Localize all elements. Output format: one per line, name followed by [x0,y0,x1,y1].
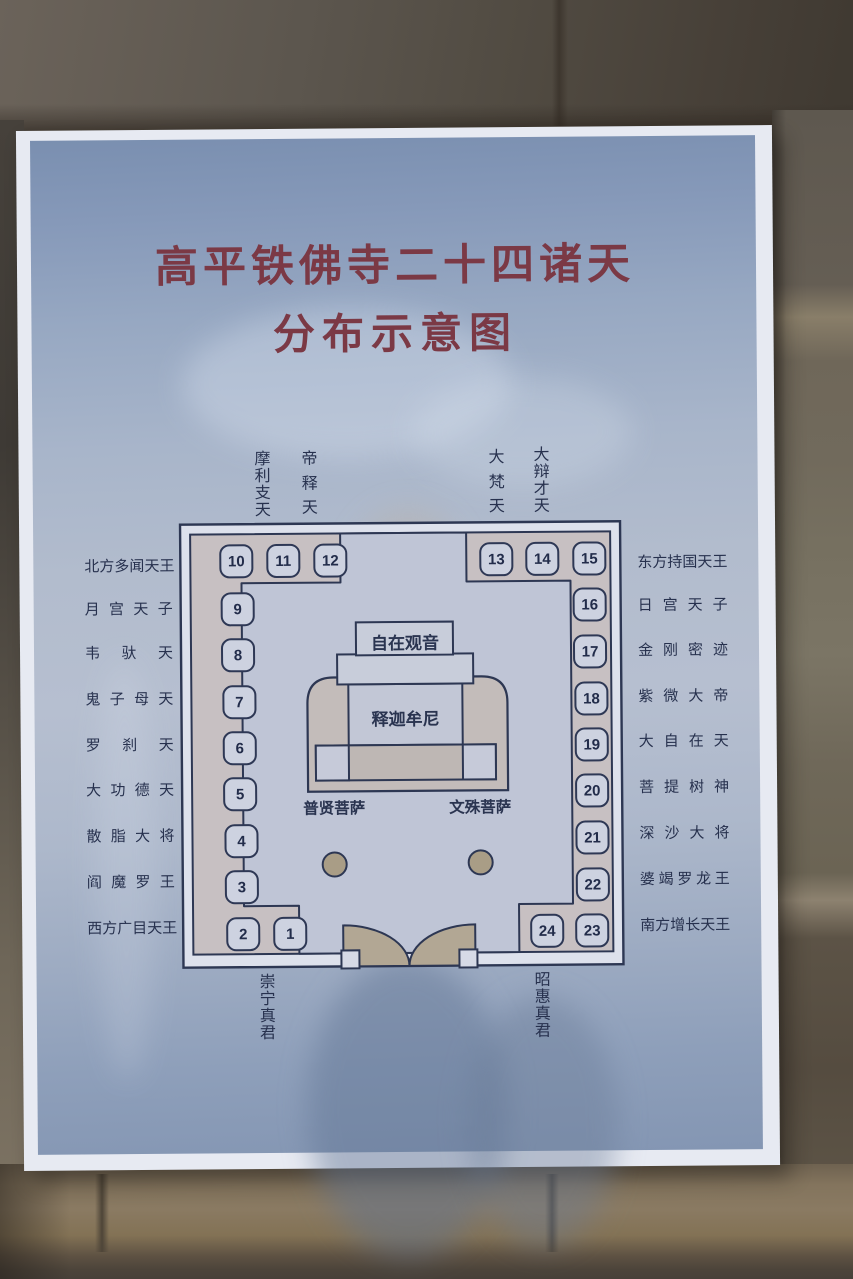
label-left-9: 西方广目天王 [87,919,175,940]
label-char: 国 [682,553,697,573]
label-char: 王 [715,869,730,889]
label-char: 摩 [254,451,270,468]
label-top-2: 帝释天 [299,451,320,517]
label-char: 天 [489,498,505,515]
label-char: 多 [114,557,129,577]
label-char: 天 [255,502,271,519]
seat-12: 12 [313,543,347,577]
label-char: 迹 [713,640,728,660]
photo-scene: 高平铁佛寺二十四诸天 分布示意图 [0,0,853,1279]
label-char: 方 [655,916,670,936]
label-char: 西 [87,919,102,939]
label-left-8: 阎魔罗王 [87,873,175,894]
label-char: 帝 [301,451,317,468]
altar-platform [337,653,473,684]
label-char: 宫 [663,596,678,616]
label-char: 方 [99,557,114,577]
label-top-4: 大辩才天 [531,447,552,515]
seat-16: 16 [573,587,607,621]
label-char: 提 [664,778,679,798]
label-char: 王 [712,552,727,572]
label-char: 闻 [129,557,144,577]
label-char: 刚 [663,641,678,661]
label-right-1: 东方持国天王 [637,552,727,573]
label-char: 君 [260,1025,276,1042]
label-char: 天 [144,557,159,577]
label-char: 沙 [664,824,679,844]
seat-4: 4 [224,824,258,858]
label-char: 深 [639,824,654,844]
altar-corner-left [316,745,349,780]
seat-8: 8 [221,638,255,672]
label-right-2: 日宫天子 [638,595,728,616]
label-char: 崇 [260,974,276,991]
seat-21: 21 [575,820,609,854]
label-char: 辩 [534,464,550,481]
label-left-1: 北方多闻天王 [84,557,172,578]
label-char: 紫 [638,687,653,707]
label-char: 天 [158,690,173,710]
label-char: 王 [159,557,174,577]
label-puxian: 普贤菩萨 [303,796,365,818]
label-right-3: 金刚密迹 [638,640,728,661]
label-char: 菩 [639,778,654,798]
label-char: 鬼 [85,690,100,710]
label-right-6: 菩提树神 [639,777,729,798]
label-bottom-2: 昭惠真君 [533,972,554,1036]
label-char: 魔 [111,873,126,893]
label-char: 梵 [489,474,505,491]
label-left-4: 鬼子母天 [85,690,173,711]
label-char: 帝 [713,686,728,706]
label-char: 月 [85,600,100,620]
label-char: 子 [713,595,728,615]
seat-11: 11 [266,544,300,578]
poster-title-line1: 高平铁佛寺二十四诸天 [17,228,773,296]
stone-joint [95,1174,109,1252]
label-char: 广 [117,919,132,939]
label-char: 南 [640,916,655,936]
label-char: 罗 [135,873,150,893]
label-char: 宁 [260,991,276,1008]
label-char: 大 [688,687,703,707]
label-char: 释 [302,475,318,492]
label-char: 竭 [658,870,673,890]
label-char: 脂 [111,827,126,847]
label-sakyamuni: 释迦牟尼 [371,705,439,731]
label-char: 天 [697,553,712,573]
label-left-5: 罗刹天 [86,736,174,757]
seat-15: 15 [572,541,606,575]
label-char: 树 [689,778,704,798]
label-char: 微 [663,687,678,707]
poster-title-line2: 分布示意图 [17,297,773,364]
label-char: 将 [714,823,729,843]
stone-joint [552,0,568,126]
seat-19: 19 [575,727,609,761]
label-char: 大 [533,447,549,464]
door-hinge-left [341,950,359,968]
pillar-left [323,852,347,876]
label-char: 东 [637,553,652,573]
label-char: 金 [638,641,653,661]
label-char: 刹 [122,736,137,756]
label-char: 目 [132,919,147,939]
label-left-7: 散脂大将 [86,827,174,848]
pillar-right [469,850,493,874]
label-char: 天 [700,916,715,936]
label-char: 大 [86,781,101,801]
label-char: 阎 [87,873,102,893]
label-char: 天 [158,644,173,664]
label-char: 王 [160,873,175,893]
label-char: 王 [715,915,730,935]
label-char: 子 [110,690,125,710]
label-char: 真 [535,1006,551,1023]
stone-joint [545,1174,559,1252]
label-char: 天 [302,500,318,517]
label-left-3: 韦驮天 [85,644,173,665]
label-char: 功 [110,781,125,801]
label-char: 支 [255,485,271,502]
label-char: 天 [159,781,174,801]
label-char: 驮 [121,644,136,664]
label-char: 天 [688,596,703,616]
label-char: 韦 [85,644,100,664]
label-guanyin: 自在观音 [371,629,439,655]
label-char: 在 [689,732,704,752]
label-char: 母 [134,690,149,710]
label-char: 德 [135,781,150,801]
label-char: 长 [685,916,700,936]
label-left-6: 大功德天 [86,781,174,802]
stone-wall-right [772,110,853,1200]
label-char: 罗 [86,736,101,756]
stone-wall-bottom [0,1164,853,1279]
label-top-3: 大梵天 [486,449,507,515]
label-right-4: 紫微大帝 [638,686,728,707]
label-top-1: 摩利支天 [252,451,273,517]
label-char: 神 [714,777,729,797]
seat-9: 9 [221,592,255,626]
label-char: 北 [84,557,99,577]
seat-7: 7 [222,685,256,719]
seat-14: 14 [525,542,559,576]
stone-wall-top [0,0,853,138]
label-char: 将 [159,827,174,847]
label-char: 真 [260,1008,276,1025]
door-hinge-right [459,949,477,967]
seat-17: 17 [573,634,607,668]
label-right-7: 深沙大将 [639,823,729,844]
label-wenshu: 文殊菩萨 [449,795,511,817]
label-char: 天 [714,731,729,751]
label-char: 昭 [535,972,551,989]
label-char: 天 [534,498,550,515]
label-char: 散 [86,827,101,847]
label-char: 持 [667,553,682,573]
seat-23: 23 [575,913,609,947]
seat-13: 13 [479,542,513,576]
label-char: 增 [670,916,685,936]
label-char: 婆 [640,870,655,890]
seat-1: 1 [273,917,307,951]
label-char: 日 [638,596,653,616]
seat-6: 6 [223,731,257,765]
seat-5: 5 [223,777,257,811]
label-char: 天 [133,600,148,620]
label-char: 大 [639,732,654,752]
label-char: 大 [689,824,704,844]
label-left-2: 月宫天子 [85,600,173,621]
seat-2: 2 [226,917,260,951]
label-char: 才 [534,481,550,498]
label-right-8: 婆竭罗龙王 [640,869,730,890]
label-char: 罗 [677,870,692,890]
label-char: 天 [147,919,162,939]
label-char: 密 [688,641,703,661]
seat-18: 18 [574,681,608,715]
label-char: 子 [158,600,173,620]
label-char: 利 [255,468,271,485]
poster: 高平铁佛寺二十四诸天 分布示意图 [16,125,780,1171]
seat-3: 3 [225,870,259,904]
label-bottom-1: 崇宁真君 [258,974,279,1038]
label-right-9: 南方增长天王 [640,915,730,936]
label-char: 龙 [696,870,711,890]
label-char: 方 [652,553,667,573]
seat-24: 24 [530,914,564,948]
label-char: 宫 [109,600,124,620]
label-char: 君 [535,1023,551,1040]
label-char: 惠 [535,989,551,1006]
seat-10: 10 [219,544,253,578]
seat-20: 20 [575,773,609,807]
altar-corner-right [463,744,496,779]
label-char: 大 [488,449,504,466]
label-char: 自 [664,732,679,752]
label-char: 天 [159,736,174,756]
label-right-5: 大自在天 [639,731,729,752]
label-char: 大 [135,827,150,847]
seat-22: 22 [576,867,610,901]
label-char: 王 [162,919,177,939]
label-char: 方 [102,919,117,939]
